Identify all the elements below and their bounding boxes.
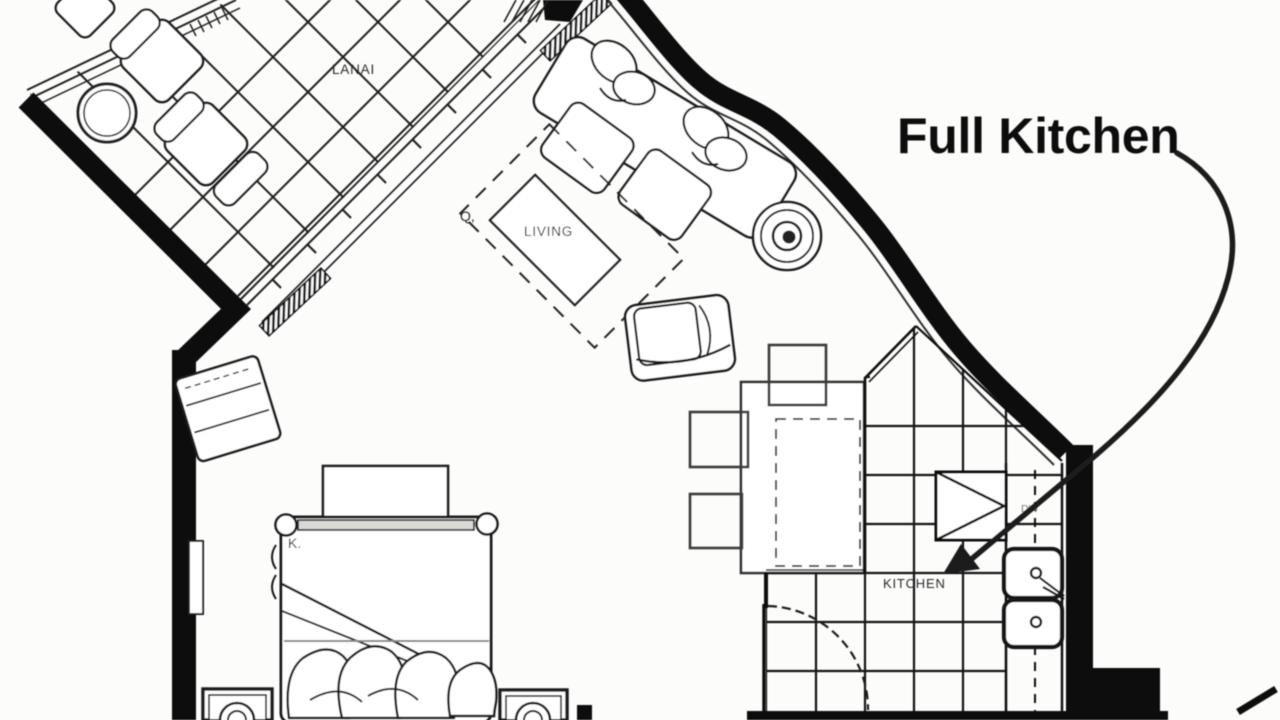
svg-text:Full Kitchen: Full Kitchen	[897, 108, 1180, 164]
svg-text:Q,: Q,	[460, 208, 475, 224]
svg-text:K.: K.	[288, 535, 301, 551]
svg-text:KITCHEN: KITCHEN	[883, 576, 946, 591]
svg-text:LIVING: LIVING	[524, 224, 573, 239]
svg-text:LANAI: LANAI	[332, 62, 375, 77]
